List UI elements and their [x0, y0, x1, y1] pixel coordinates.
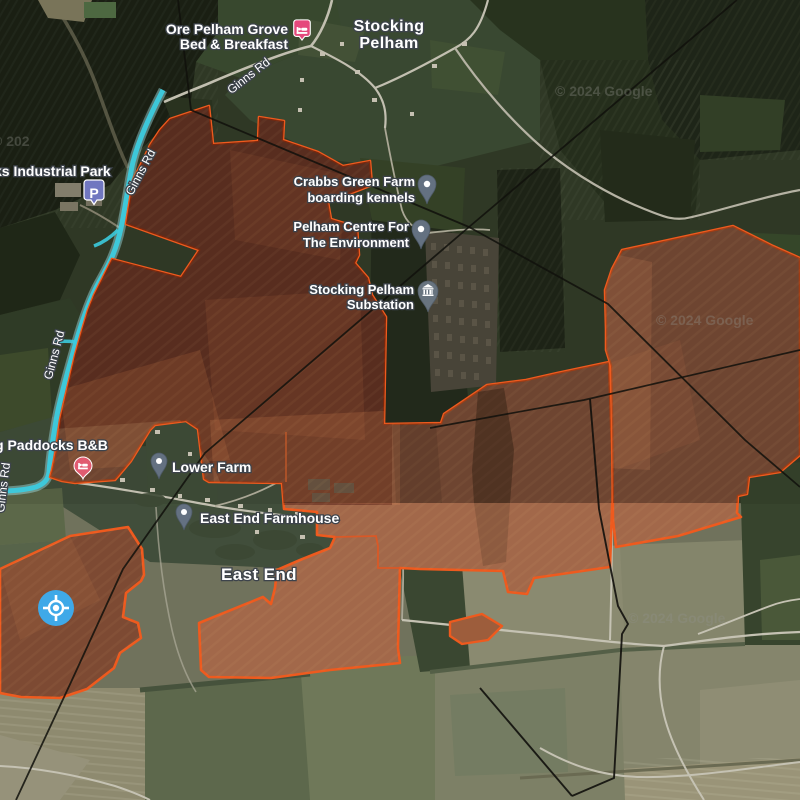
svg-text:© 2024 Google: © 2024 Google: [628, 610, 726, 626]
svg-text:The Environment: The Environment: [303, 235, 410, 250]
svg-text:© 2024 Google: © 2024 Google: [555, 83, 653, 99]
svg-text:boarding kennels: boarding kennels: [307, 190, 415, 205]
svg-text:Lower Farm: Lower Farm: [172, 459, 251, 475]
svg-text:© 202: © 202: [0, 133, 30, 149]
svg-text:Substation: Substation: [347, 297, 414, 312]
svg-text:Bed & Breakfast: Bed & Breakfast: [180, 36, 288, 52]
svg-text:East End Farmhouse: East End Farmhouse: [200, 510, 339, 526]
svg-text:Crabbs Green Farm: Crabbs Green Farm: [294, 174, 415, 189]
svg-text:© 2024 Google: © 2024 Google: [656, 312, 754, 328]
svg-text:P: P: [89, 185, 98, 201]
svg-text:Stocking: Stocking: [354, 18, 425, 35]
svg-text:Pelham Centre For: Pelham Centre For: [293, 219, 409, 234]
svg-text:Pelham: Pelham: [359, 35, 418, 52]
svg-text:g Paddocks B&B: g Paddocks B&B: [0, 437, 108, 453]
svg-text:East End: East End: [221, 565, 297, 584]
svg-text:Ore Pelham Grove: Ore Pelham Grove: [166, 21, 288, 37]
svg-text:ks Industrial Park: ks Industrial Park: [0, 163, 111, 179]
svg-text:Stocking Pelham: Stocking Pelham: [309, 282, 414, 297]
